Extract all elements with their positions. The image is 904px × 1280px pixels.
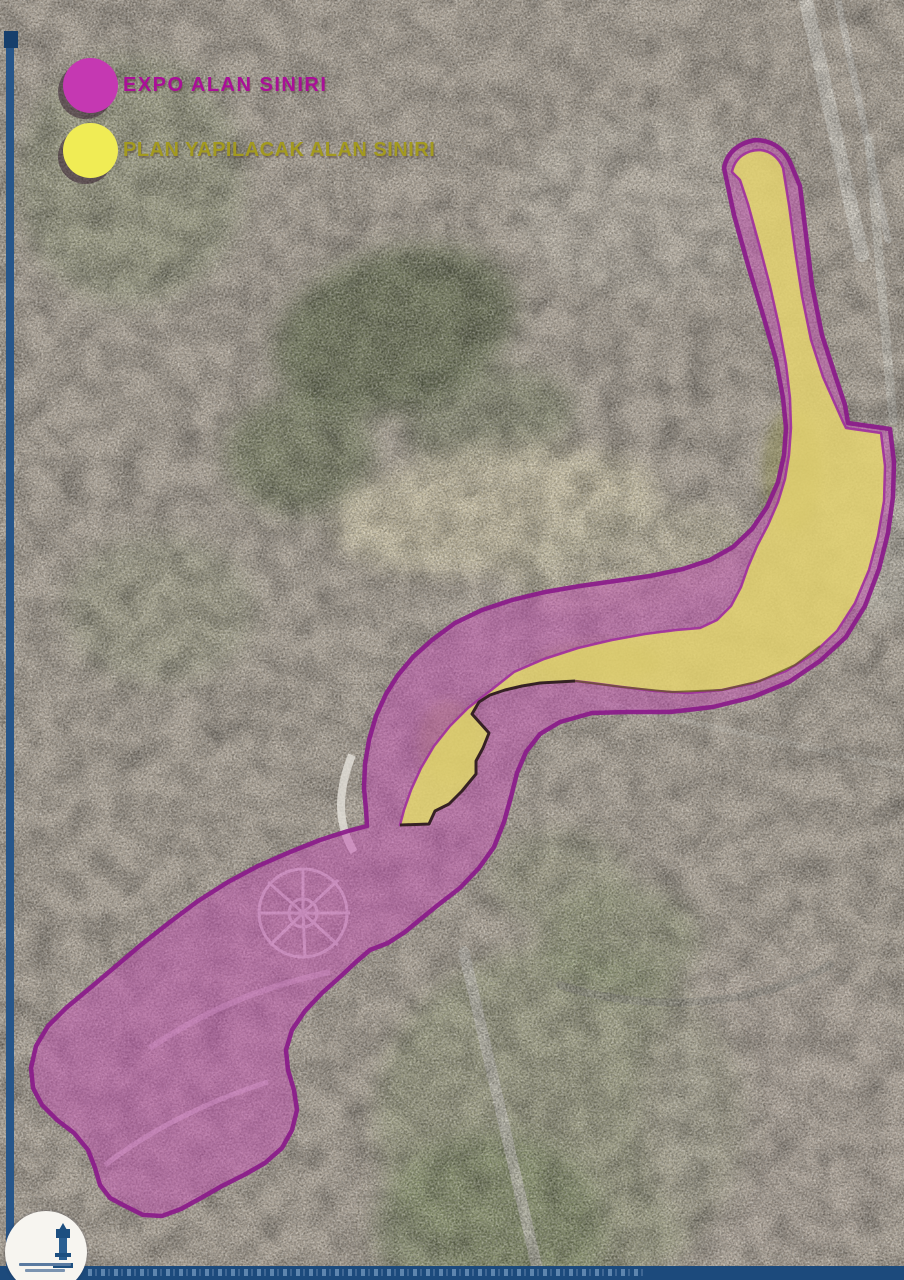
expo-label: EXPO ALAN SINIRI: [123, 74, 327, 97]
left-border-cap: [4, 31, 18, 48]
plan-label: PLAN YAPILACAK ALAN SINIRI: [123, 139, 435, 162]
clock-tower-icon: [53, 1223, 73, 1275]
logo-text-line: [25, 1269, 65, 1272]
logo-text-line: [19, 1263, 71, 1266]
footer-fine-print: [88, 1269, 643, 1276]
plan-swatch: [63, 123, 118, 178]
footer-bar: [0, 1266, 904, 1280]
expo-swatch: [63, 58, 118, 113]
legend: EXPO ALAN SINIRI PLAN YAPILACAK ALAN SIN…: [0, 0, 520, 200]
map-canvas: EXPO ALAN SINIRI PLAN YAPILACAK ALAN SIN…: [0, 0, 904, 1280]
left-border-bar: [6, 33, 14, 1270]
